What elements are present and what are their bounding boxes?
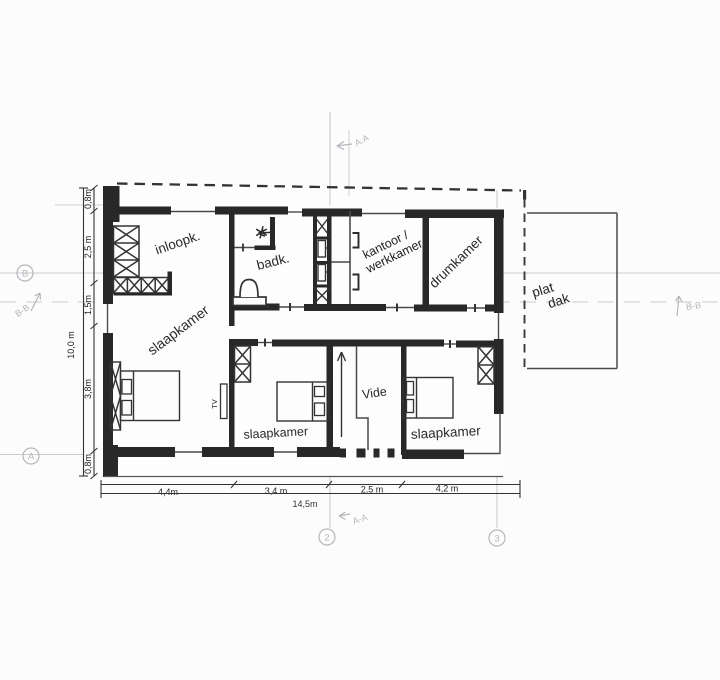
svg-text:14,5m: 14,5m (292, 499, 317, 509)
svg-text:2: 2 (324, 533, 329, 544)
svg-text:B: B (22, 269, 28, 280)
svg-text:2,5 m: 2,5 m (83, 236, 93, 259)
svg-text:4,4m: 4,4m (158, 487, 178, 497)
svg-text:4,2 m: 4,2 m (436, 484, 459, 494)
svg-text:0,8m: 0,8m (83, 189, 93, 209)
svg-text:3,4 m: 3,4 m (265, 486, 288, 496)
svg-text:10,0 m: 10,0 m (66, 331, 76, 359)
svg-text:A: A (28, 452, 35, 463)
svg-text:3: 3 (494, 534, 499, 545)
svg-text:0,8m: 0,8m (83, 454, 93, 474)
svg-text:TV: TV (210, 399, 219, 409)
svg-text:3,8m: 3,8m (83, 379, 93, 399)
svg-text:B-B: B-B (685, 300, 701, 312)
svg-text:1,5m: 1,5m (83, 295, 93, 315)
